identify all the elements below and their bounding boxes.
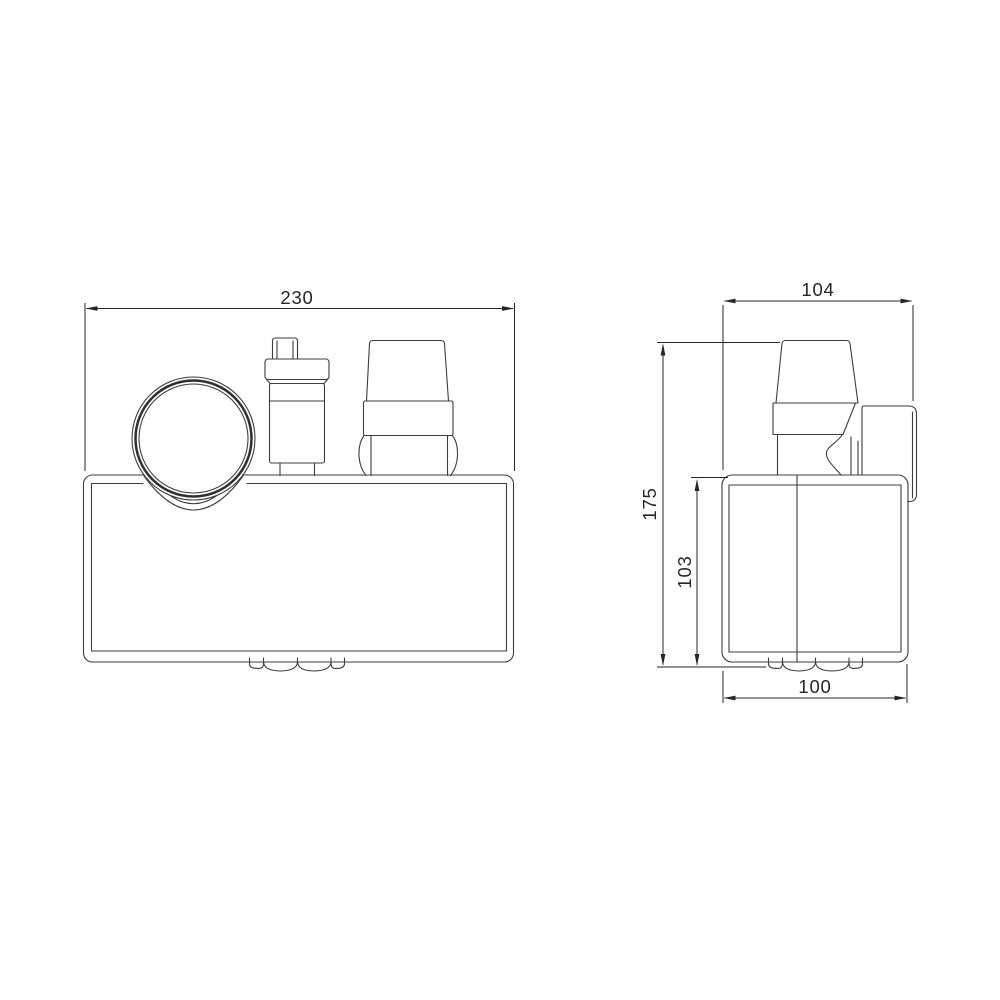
dim-side-depth-extension-lines (723, 305, 913, 470)
knob-cone-front (367, 341, 449, 402)
dim-front-width-arrow-right (502, 306, 514, 311)
dim-front-width-arrow-left (86, 306, 98, 311)
hex-nut-front (250, 658, 345, 671)
dim-side-base-depth-arrow-left (724, 696, 736, 701)
front-view: 230 (84, 287, 515, 671)
hex-nut-side (769, 658, 863, 671)
dial-outer-ring (132, 377, 255, 500)
side-view: 104 175 103 100 (639, 279, 917, 703)
valve-spout-curve (826, 435, 842, 476)
dim-side-overall-height: 175 (639, 343, 780, 668)
air-vent-stem (273, 338, 298, 359)
knob-neck-lines-side (778, 435, 859, 476)
dim-side-body-height: 103 (674, 478, 728, 667)
dim-front-width-label: 230 (280, 287, 313, 308)
dim-side-depth-label: 104 (801, 279, 834, 300)
dim-side-body-height-arrow-bottom (695, 654, 700, 666)
air-vent-neck (280, 463, 315, 476)
body-chamfer-lines-front (92, 484, 507, 652)
air-vent-cap (265, 359, 329, 380)
air-vent-valve (265, 338, 329, 476)
valve-body-front (84, 475, 514, 662)
dim-side-depth-arrow-right (901, 299, 913, 304)
dim-side-base-depth-label: 100 (798, 676, 831, 697)
technical-drawing-page: 230 104 (0, 0, 1000, 1000)
valve-body-side (722, 475, 908, 662)
knob-band-front (364, 401, 454, 436)
dim-side-overall-height-label: 175 (639, 487, 660, 520)
dial-port (132, 377, 255, 500)
hex-nut-front-outline (250, 658, 345, 671)
dim-side-body-height-arrow-top (695, 479, 700, 491)
body-outline-side (722, 475, 908, 662)
technical-drawing-canvas: 230 104 (0, 0, 1000, 1000)
dim-side-depth: 104 (723, 279, 913, 470)
air-vent-cylinder (270, 384, 325, 464)
knob-bulb-front (359, 436, 458, 476)
hex-nut-side-outline (769, 658, 863, 671)
body-chamfer-lines-side (729, 476, 901, 662)
dim-side-overall-height-arrow-top (661, 344, 666, 356)
dim-side-overall-height-extension-lines (657, 343, 780, 668)
air-vent-cap-taper (267, 380, 328, 384)
knob-cone-side (776, 341, 858, 404)
control-knob-front (359, 341, 458, 476)
dim-side-depth-arrow-left (724, 299, 736, 304)
dim-side-body-height-label: 103 (674, 555, 695, 588)
control-knob-side (773, 341, 858, 476)
body-outline-front (84, 475, 514, 662)
dim-side-overall-height-arrow-bottom (661, 654, 666, 666)
dim-side-base-depth-arrow-right (895, 696, 907, 701)
dim-side-base-depth: 100 (723, 664, 907, 703)
knob-band-side (773, 403, 856, 435)
